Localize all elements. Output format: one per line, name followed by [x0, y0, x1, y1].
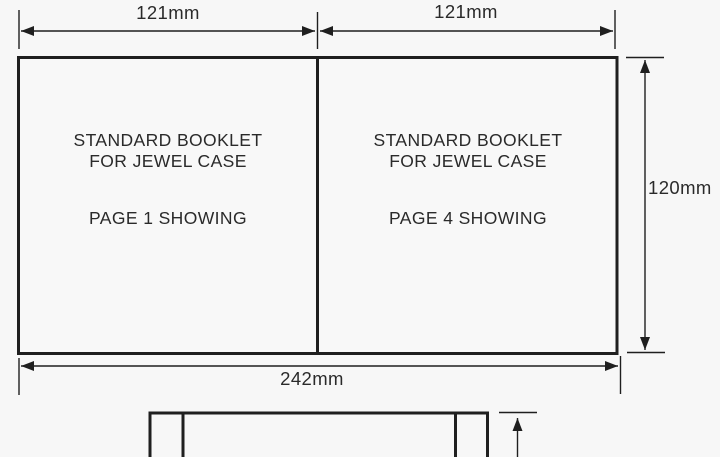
panel-left-title-line2: FOR JEWEL CASE: [20, 151, 316, 172]
panel-left-title-line1: STANDARD BOOKLET: [20, 130, 316, 151]
dimension-label-top-left: 121mm: [108, 3, 228, 23]
panel-right-title-line1: STANDARD BOOKLET: [320, 130, 616, 151]
booklet-dimension-diagram: 121mm 121mm 120mm 242mm STANDARD BOOKLET…: [0, 0, 720, 457]
dimension-label-bottom-total: 242mm: [252, 369, 372, 389]
booklet-cross-section: [149, 412, 490, 457]
dimension-label-top-right: 121mm: [406, 2, 526, 22]
panel-right-title: STANDARD BOOKLET FOR JEWEL CASE: [320, 130, 616, 172]
panel-right-page-line: PAGE 4 SHOWING: [320, 208, 616, 229]
panel-left-title: STANDARD BOOKLET FOR JEWEL CASE: [20, 130, 316, 172]
panel-left-page-line: PAGE 1 SHOWING: [20, 208, 316, 229]
dimension-label-right-height: 120mm: [648, 178, 712, 198]
panel-right-title-line2: FOR JEWEL CASE: [320, 151, 616, 172]
